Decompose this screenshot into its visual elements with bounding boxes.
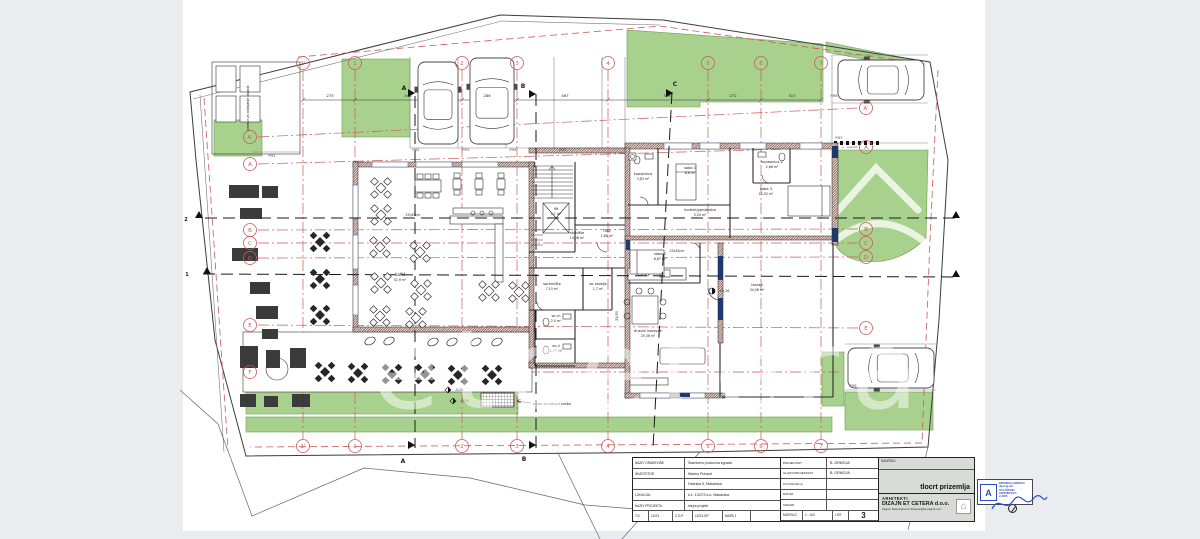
svg-text:3: 3: [515, 61, 519, 67]
svg-text:1': 1': [300, 444, 305, 450]
firm-panel: ARHITEKTI DIZAJN ET CETERA d.o.o. Zagreb…: [879, 494, 974, 521]
field-value: [827, 479, 878, 489]
field-label: GLAVNI PROJEKTANT: [781, 469, 827, 479]
svg-text:PM3: PM3: [462, 148, 469, 152]
svg-text:wc osoblje: wc osoblje: [589, 282, 606, 286]
svg-text:stubište: stubište: [570, 231, 585, 235]
zop-value: 12/23-GP: [693, 511, 723, 521]
title-block-designer-table: PROJEKTANTB. GRMOJA GLAVNI PROJEKTANTB. …: [781, 458, 879, 521]
field-label: ±0,0=96,00mnv: [781, 479, 827, 489]
indoor-tables: [370, 173, 530, 328]
drawing-title: tlocrt prizemlja: [879, 470, 974, 494]
watermark-text: etcetera: [372, 306, 930, 434]
svg-text:4: 4: [606, 444, 610, 450]
svg-text:4: 4: [606, 61, 610, 67]
field-value: Marino Puharić: [685, 469, 780, 479]
zop-label: Z.O.P.: [673, 511, 693, 521]
field-value: [827, 490, 878, 500]
svg-text:7,15 m²: 7,15 m²: [546, 287, 559, 291]
svg-text:E: E: [248, 323, 252, 329]
title-block-project-table: NAZIV GRAĐEVINEStambeno poslovna zgrada …: [633, 458, 781, 521]
svg-text:spremište: spremište: [543, 282, 562, 286]
mapa-value: MAPA 1: [723, 511, 751, 521]
mjerilo-value: 1 : 100: [803, 511, 833, 521]
svg-text:272: 272: [729, 93, 737, 98]
svg-text:B: B: [864, 227, 868, 233]
field-value: k.č. 1347/3 k.o. Makarska: [685, 490, 780, 500]
svg-text:A: A: [401, 458, 406, 465]
field-value: [827, 500, 878, 510]
svg-text:ulaz: ulaz: [603, 229, 610, 233]
svg-text:6: 6: [759, 61, 763, 67]
svg-text:+3,26: +3,26: [719, 289, 729, 293]
field-label: NAZIV GRAĐEVINE: [633, 458, 685, 468]
svg-text:467: 467: [561, 93, 569, 98]
svg-text:soba 1: soba 1: [684, 166, 696, 170]
svg-text:terasa: terasa: [751, 283, 762, 287]
svg-text:6: 6: [759, 444, 763, 450]
svg-text:34,08 m²: 34,08 m²: [750, 288, 765, 292]
sadrzaj-header: SADRŽAJ: [879, 458, 974, 470]
svg-text:5,04 m²: 5,04 m²: [694, 213, 707, 217]
svg-text:kupaonica 2: kupaonica 2: [761, 160, 783, 164]
svg-text:PM6: PM6: [830, 94, 837, 98]
svg-text:275: 275: [326, 93, 334, 98]
svg-text:C: C: [248, 241, 252, 247]
svg-text:2: 2: [460, 444, 464, 450]
svg-text:B: B: [248, 228, 252, 234]
svg-text:B: B: [521, 83, 526, 90]
field-label: LOKACIJA: [633, 490, 685, 500]
svg-text:1: 1: [353, 444, 357, 450]
svg-text:7: 7: [819, 444, 823, 450]
field-value: Hvarska 9, Makarska: [685, 479, 780, 489]
svg-text:hodnik/garderoba: hodnik/garderoba: [684, 208, 716, 212]
svg-text:8,6 m²: 8,6 m²: [685, 171, 696, 175]
field-value: idejni projekt: [685, 501, 780, 511]
svg-text:soba 3: soba 3: [760, 187, 772, 191]
svg-text:PM7: PM7: [835, 136, 842, 140]
svg-text:PM1: PM1: [268, 154, 275, 158]
signature: [989, 491, 1049, 515]
field-label: NAZIV PROJEKTA: [633, 501, 685, 511]
svg-text:286: 286: [483, 93, 491, 98]
svg-text:7: 7: [819, 61, 823, 67]
svg-text:A: A: [864, 145, 868, 151]
svg-text:546: 546: [404, 93, 412, 98]
svg-text:D: D: [248, 256, 252, 262]
svg-text:1,68 m²: 1,68 m²: [601, 234, 614, 238]
field-label: DATUM: [781, 490, 827, 500]
svg-text:kafić: kafić: [395, 271, 406, 278]
svg-text:PM2: PM2: [412, 148, 419, 152]
sheet-number: 3: [849, 511, 878, 521]
svg-text:A: A: [248, 162, 252, 168]
svg-text:12,92 m²: 12,92 m²: [759, 192, 774, 196]
svg-text:kupaonica: kupaonica: [634, 172, 652, 176]
svg-text:B: B: [522, 456, 527, 463]
field-label: [633, 479, 685, 489]
svg-text:lift: lift: [554, 207, 559, 211]
svg-text:1: 1: [185, 272, 189, 278]
svg-text:C: C: [673, 81, 678, 88]
field-value: B. GRMOJA: [827, 458, 878, 468]
svg-text:1: 1: [353, 61, 357, 67]
svg-text:2,86 m²: 2,86 m²: [766, 165, 779, 169]
list-label: LIST: [833, 511, 849, 521]
svg-text:317: 317: [788, 93, 796, 98]
svg-text:D: D: [864, 255, 868, 261]
svg-text:5: 5: [706, 61, 710, 67]
svg-text:3,83 m²: 3,83 m²: [637, 177, 650, 181]
svg-text:A: A: [402, 85, 407, 92]
svg-text:prostor za odlaganje otpada: prostor za odlaganje otpada: [246, 86, 250, 131]
svg-text:52,9 m²: 52,9 m²: [394, 278, 407, 282]
svg-text:319: 319: [663, 93, 671, 98]
svg-text:2,1 m²: 2,1 m²: [551, 212, 562, 216]
mjerilo-label: MJERILO: [781, 511, 803, 521]
title-block: NAZIV GRAĐEVINEStambeno poslovna zgrada …: [632, 457, 975, 522]
svg-text:25/43cm: 25/43cm: [406, 213, 422, 217]
svg-text:25/43cm: 25/43cm: [670, 249, 686, 253]
screenshot-root: kafić52,9 m²stubište14,08 m²lift2,1 m²ku…: [0, 0, 1200, 539]
svg-text:F: F: [248, 370, 251, 376]
firm-logo-icon: ⌂: [956, 499, 971, 514]
svg-text:C: C: [864, 241, 868, 247]
svg-text:soba 2: soba 2: [654, 252, 666, 256]
svg-text:5: 5: [706, 444, 710, 450]
svg-text:PM5: PM5: [559, 148, 566, 152]
svg-text:1,7 m²: 1,7 m²: [593, 287, 604, 291]
svg-text:A': A': [247, 135, 252, 141]
field-value: Stambeno poslovna zgrada: [685, 458, 780, 468]
svg-text:2: 2: [184, 217, 188, 223]
field-label: PROJEKTANT: [781, 458, 827, 468]
svg-text:14,08 m²: 14,08 m²: [570, 236, 585, 240]
title-block-content-panel: SADRŽAJ tlocrt prizemlja ARHITEKTI DIZAJ…: [879, 458, 974, 521]
svg-text:PM4: PM4: [509, 148, 516, 152]
empty-cell: [751, 511, 780, 521]
floor-plan-drawing: kafić52,9 m²stubište14,08 m²lift2,1 m²ku…: [0, 0, 1200, 539]
svg-text:3: 3: [515, 444, 519, 450]
svg-text:2: 2: [460, 61, 464, 67]
field-label: SJEVER: [781, 500, 827, 510]
svg-text:A': A': [863, 106, 868, 112]
svg-text:8,67 m²: 8,67 m²: [654, 257, 667, 261]
field-value: B. GRMOJA: [827, 469, 878, 479]
svg-text:1': 1': [300, 61, 305, 67]
field-label: INVESTITOR: [633, 469, 685, 479]
td-value: 12/23: [649, 511, 673, 521]
td-label: T.D.: [633, 511, 649, 521]
